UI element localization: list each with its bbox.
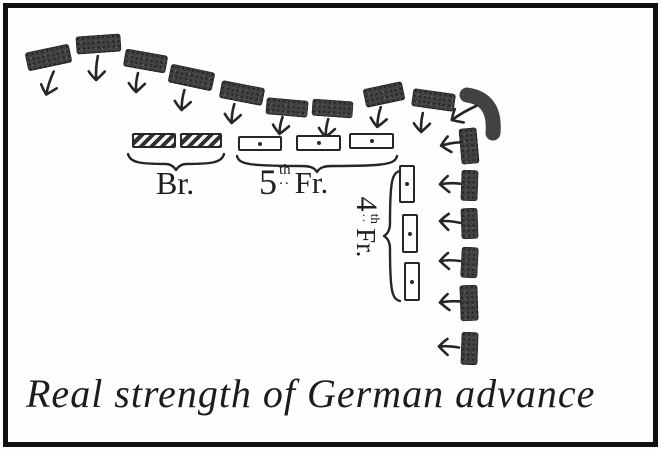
german-unit-bar: [25, 44, 73, 72]
german-unit-bar: [459, 285, 478, 322]
label-5th-french-ordinal: th ..: [279, 165, 291, 184]
advance-arrow-icon: [365, 104, 392, 130]
unit-dot: [410, 280, 414, 284]
label-5th-french-nation: Fr.: [295, 167, 329, 198]
unit-dot: [317, 141, 321, 145]
label-5th-french: 5 th .. Fr.: [259, 164, 328, 200]
german-unit-bar: [123, 48, 168, 73]
french-5th-unit-box: [296, 135, 341, 151]
advance-arrow-icon: [35, 67, 66, 99]
label-british: Br.: [156, 167, 194, 199]
diagram-canvas: Br. 5 th .. Fr. 4 th .. Fr. Real strengt…: [0, 0, 661, 450]
unit-dot: [408, 232, 412, 236]
ordinal-dots: ..: [363, 214, 371, 225]
advance-arrow-icon: [124, 71, 150, 94]
label-4th-french-nation: Fr.: [352, 228, 379, 257]
advance-arrow-icon: [268, 114, 295, 137]
british-unit-box: [180, 133, 222, 148]
french-5th-unit-box: [349, 133, 394, 149]
advance-arrow-icon: [84, 54, 110, 82]
advance-arrow-icon: [439, 249, 461, 273]
german-unit-bar: [75, 33, 121, 54]
figure-caption: Real strength of German advance: [26, 372, 636, 416]
unit-dot: [258, 142, 262, 146]
advance-arrow-icon: [438, 289, 461, 314]
german-unit-bar: [311, 99, 353, 119]
advance-arrow-icon: [438, 209, 462, 235]
german-unit-bar: [460, 332, 478, 366]
label-4th-french-text: 4 th .. Fr.: [343, 197, 381, 258]
advance-arrow-icon: [170, 87, 197, 112]
advance-arrow-icon: [437, 334, 460, 359]
label-4th-french-number: 4: [351, 197, 381, 212]
label-5th-french-number: 5: [259, 164, 277, 200]
advance-arrow-icon: [409, 111, 435, 134]
advance-arrow-icon: [438, 130, 464, 157]
figure-page: Br. 5 th .. Fr. 4 th .. Fr. Real strengt…: [0, 0, 661, 450]
british-unit-box: [132, 133, 176, 148]
french4-brace: [380, 169, 404, 303]
label-4th-french-ordinal: th ..: [363, 214, 380, 225]
german-unit-bar: [460, 247, 479, 279]
unit-dot: [405, 182, 409, 186]
label-4th-french: 4 th .. Fr.: [343, 167, 381, 287]
french-4th-unit-box: [402, 214, 418, 253]
german-unit-bar: [460, 208, 478, 240]
german-unit-bar: [460, 170, 478, 202]
french-4th-unit-box: [404, 262, 420, 301]
ordinal-dots: ..: [279, 176, 291, 184]
french-5th-unit-box: [238, 136, 282, 151]
advance-arrow-icon: [220, 101, 247, 125]
advance-arrow-icon: [439, 172, 462, 197]
unit-dot: [370, 139, 374, 143]
